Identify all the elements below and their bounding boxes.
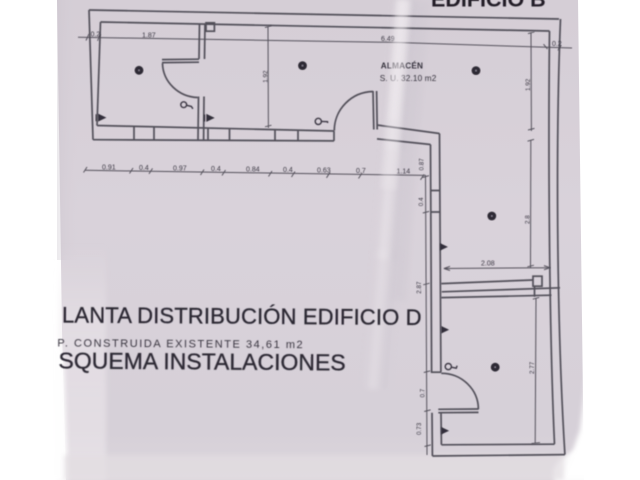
svg-text:2.8: 2.8 (524, 215, 531, 224)
svg-text:1.92: 1.92 (525, 78, 532, 91)
svg-text:2.77: 2.77 (529, 361, 536, 374)
svg-text:0.63: 0.63 (317, 168, 331, 175)
svg-text:0.4: 0.4 (211, 166, 221, 173)
svg-text:1.14: 1.14 (397, 169, 411, 176)
svg-text:0.73: 0.73 (416, 422, 423, 435)
svg-text:S. U. 32.10 m2: S. U. 32.10 m2 (380, 74, 437, 83)
svg-text:0.2: 0.2 (91, 31, 101, 38)
svg-text:0.4: 0.4 (139, 165, 149, 172)
svg-text:0.91: 0.91 (102, 165, 116, 172)
svg-text:1.87: 1.87 (142, 33, 156, 40)
svg-text:2.08: 2.08 (481, 261, 495, 268)
svg-text:SQUEMA INSTALACIONES: SQUEMA INSTALACIONES (58, 347, 345, 375)
svg-text:2.87: 2.87 (416, 281, 423, 294)
svg-text:0.7: 0.7 (419, 388, 426, 397)
svg-text:0.84: 0.84 (246, 167, 260, 174)
svg-text:0.87: 0.87 (419, 158, 426, 171)
svg-text:0.4: 0.4 (418, 197, 425, 206)
svg-text:0.4: 0.4 (283, 167, 293, 174)
svg-text:LANTA DISTRIBUCIÓN EDIFICIO D: LANTA DISTRIBUCIÓN EDIFICIO D (62, 303, 422, 331)
svg-text:0.97: 0.97 (173, 166, 187, 173)
svg-text:0.7: 0.7 (356, 168, 366, 175)
svg-text:0.2: 0.2 (552, 41, 562, 48)
svg-text:EDIFICIO B: EDIFICIO B (431, 0, 546, 12)
svg-text:1.92: 1.92 (263, 70, 270, 83)
